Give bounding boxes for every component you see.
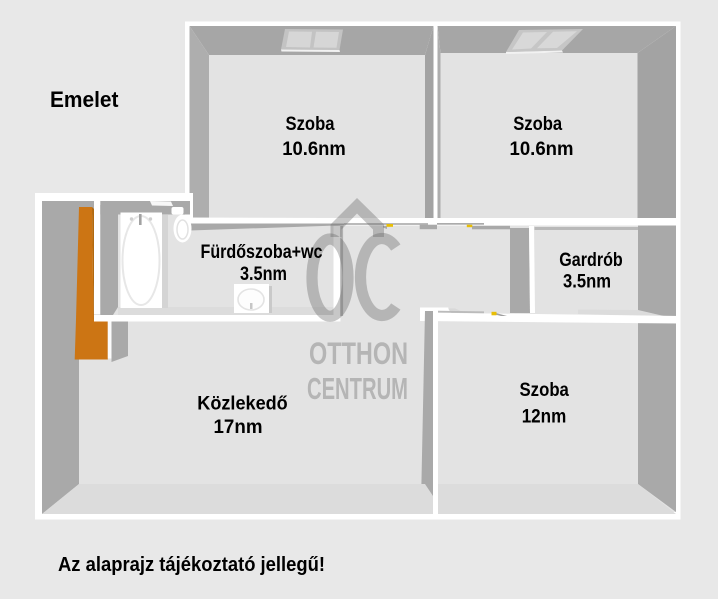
svg-text:10.6nm: 10.6nm	[510, 138, 574, 160]
svg-text:12nm: 12nm	[522, 406, 567, 428]
svg-text:10.6nm: 10.6nm	[282, 138, 346, 160]
svg-text:Az alaprajz tájékoztató jelleg: Az alaprajz tájékoztató jellegű!	[58, 553, 325, 576]
svg-text:Szoba: Szoba	[520, 379, 570, 401]
svg-text:Szoba: Szoba	[513, 113, 562, 135]
svg-text:Szoba: Szoba	[286, 113, 335, 135]
svg-text:Emelet: Emelet	[50, 87, 119, 112]
svg-text:Gardrób: Gardrób	[559, 249, 623, 271]
svg-text:3.5nm: 3.5nm	[240, 263, 287, 285]
svg-text:17nm: 17nm	[214, 416, 263, 438]
svg-text:OTTHON: OTTHON	[309, 335, 408, 371]
svg-text:CENTRUM: CENTRUM	[307, 372, 408, 406]
svg-text:3.5nm: 3.5nm	[563, 271, 611, 293]
svg-text:Fürdőszoba+wc: Fürdőszoba+wc	[201, 241, 323, 263]
svg-text:Közlekedő: Közlekedő	[197, 393, 288, 415]
